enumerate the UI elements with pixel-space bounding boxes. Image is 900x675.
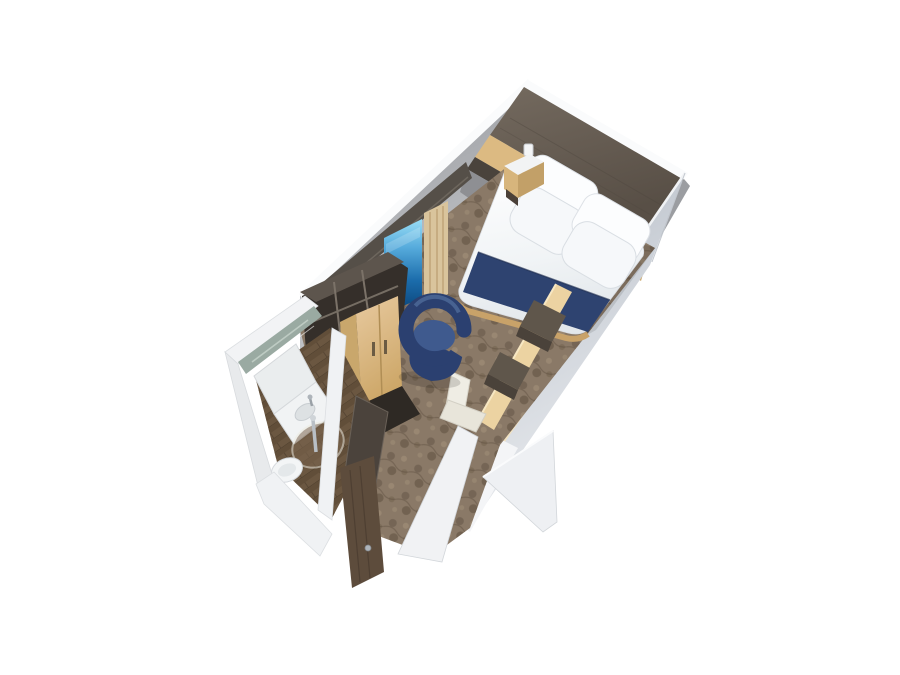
curtain-panel	[424, 201, 448, 306]
stateroom-svg: entry corridor cutaway walls dark wood h…	[0, 0, 900, 675]
wardrobe-handle	[384, 340, 387, 354]
wardrobe-handle	[372, 342, 375, 356]
faucet-head	[308, 395, 313, 400]
shower-head	[310, 415, 316, 421]
door-handle	[365, 545, 371, 551]
wall-light	[524, 144, 533, 156]
stateroom-render: entry corridor cutaway walls dark wood h…	[0, 0, 900, 675]
